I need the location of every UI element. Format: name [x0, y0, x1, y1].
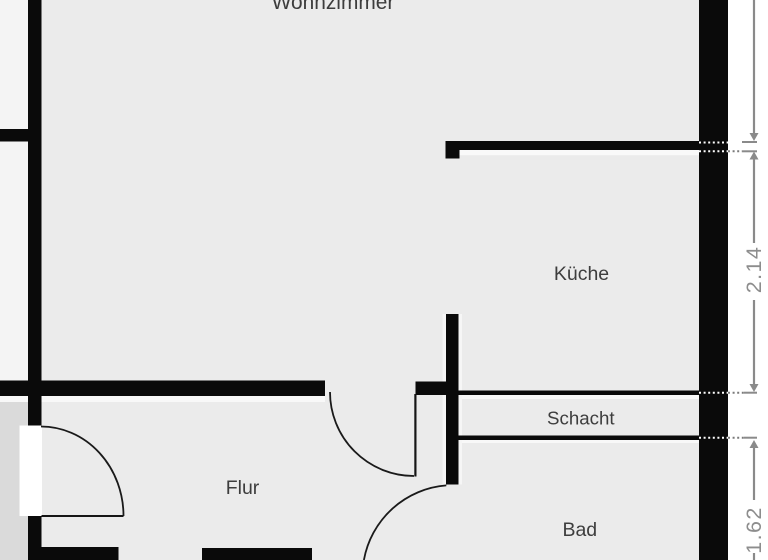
svg-text:Schacht: Schacht: [547, 408, 615, 429]
svg-text:Flur: Flur: [226, 477, 260, 499]
svg-text:2.14: 2.14: [742, 246, 766, 293]
svg-text:Küche: Küche: [554, 263, 609, 285]
svg-text:Wohnzimmer: Wohnzimmer: [272, 0, 395, 14]
svg-text:1.62: 1.62: [742, 506, 766, 553]
svg-text:Bad: Bad: [562, 519, 597, 541]
